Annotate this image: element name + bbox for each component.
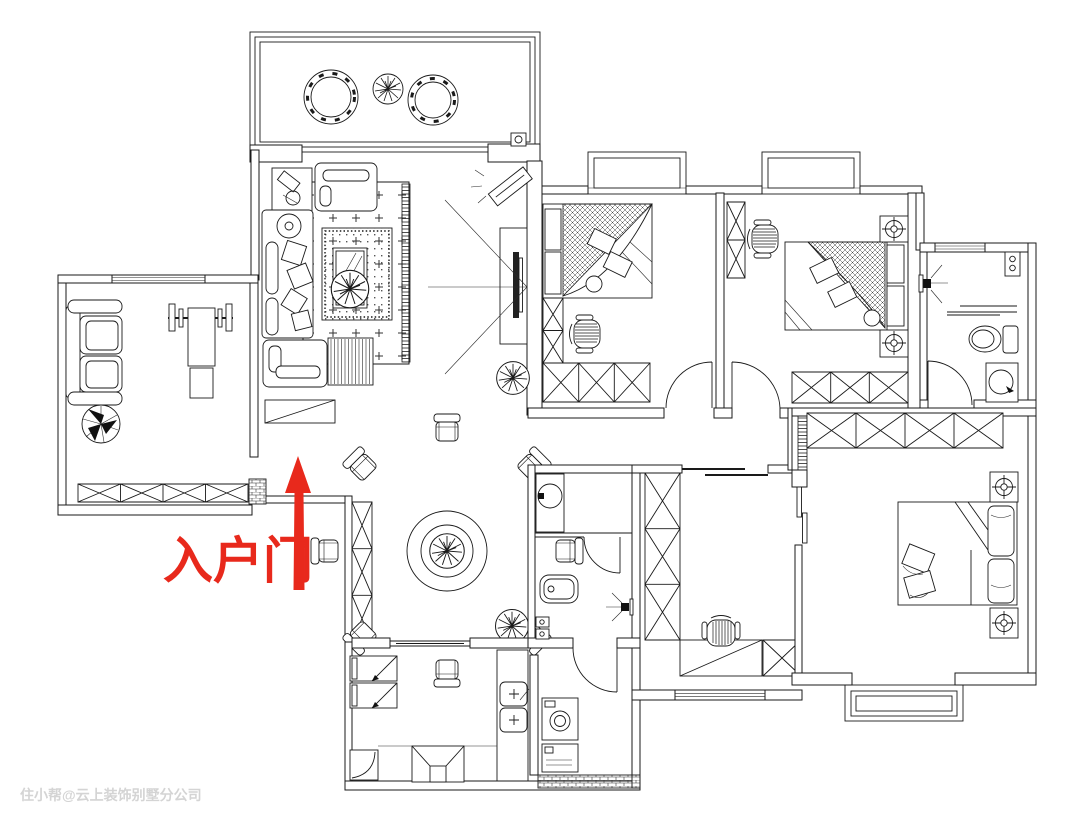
round-chair-icon [408,75,458,125]
gym-room [58,275,266,515]
plant-icon [497,362,530,395]
tv-icon [513,252,523,318]
weight-bench [168,304,233,398]
centerpiece-plant-icon [430,534,465,569]
wall-segment [528,638,573,648]
vanity-sink [536,474,564,532]
plant-icon [373,74,403,104]
wall-segment [716,193,724,408]
bay-window [762,152,860,194]
door-swing [584,537,620,573]
balcony [250,32,540,162]
water-heater-icon [542,744,578,772]
sliding-door [797,487,807,543]
window [112,275,205,283]
bedroom-1 [528,152,762,418]
nightstand [880,216,908,242]
bathtub [540,575,578,603]
bed [898,502,1017,605]
entry-door-threshold [266,496,345,503]
wall-segment [352,638,390,648]
wall-segment [58,505,252,515]
armchair [263,340,327,387]
nightstand [880,330,908,357]
office-chair [570,315,601,353]
cabinet-x [792,372,908,403]
bathroom-2 [528,465,640,700]
bed [543,204,652,298]
wall-segment [528,465,535,645]
wardrobe-x [645,473,680,640]
wardrobe-x [807,413,1003,448]
wall-segment [955,673,1036,685]
round-chair-icon [304,70,358,124]
sliding-door [682,469,768,475]
armchair [315,163,377,211]
stove-hood [412,746,464,782]
wall-segment [792,673,852,685]
bed [785,242,904,330]
table-plant-icon [331,270,369,308]
corner-cabinet [350,750,378,780]
wall-segment [250,283,258,457]
bay-window [588,152,686,194]
wall-segment [788,408,792,470]
kitchen-counter [497,650,529,781]
sink-icon [986,363,1018,402]
wall-segment [528,465,640,473]
wall-segment [530,655,538,775]
office-chair [702,616,740,647]
wall-segment [542,186,588,194]
wall-segment [488,144,540,162]
toilet-icon [969,326,1018,353]
wall-segment [58,275,66,515]
wall-segment [714,408,732,418]
wall-segment [617,638,640,648]
master-bedroom [788,408,1036,721]
office-chair [748,220,779,258]
wall-segment [1028,243,1036,683]
cabinet-x [543,363,650,402]
shoe-cabinet [265,400,335,423]
window [935,243,985,252]
wall-segment [792,470,807,487]
wardrobe-x [543,298,563,363]
wall-segment [470,638,535,648]
washing-machine-icon [542,698,578,740]
wall-segment [632,465,682,473]
wall-segment [916,193,924,250]
kitchen [345,638,640,790]
wall-segment [251,150,259,280]
wall-segment [528,408,664,418]
speaker-frame-icon [488,167,532,206]
sofa [262,210,313,338]
tv-sightlines [428,200,527,374]
nightstand [990,472,1018,502]
brick-wall [538,775,640,788]
fridge [350,656,397,708]
coffee-table [331,248,369,308]
wardrobe-x [727,202,745,278]
sliding-door [390,641,470,646]
bay-window [845,685,963,721]
wall-segment [345,496,352,642]
door-swing [928,361,972,405]
cabinet-x [352,502,372,642]
door-swing [666,362,712,408]
wall-hatch [798,416,807,470]
switch-box [1005,252,1020,276]
shelf [947,306,1017,315]
entry-annotation: 入户门 [163,456,313,590]
wall-segment [920,400,928,408]
laundry [538,698,640,788]
potted-plant-icon [82,405,120,443]
wall-segment [795,545,802,675]
nightstand [990,608,1018,638]
partition [535,533,632,537]
shower-head-icon [606,593,633,621]
floor-plan: 入户门 住小帮@云上装饰别墅分公司 [0,0,1080,830]
window [675,690,765,700]
floor-drain-icon [511,133,526,146]
study [632,465,802,700]
door-jamb [249,479,266,504]
door-swing [573,648,617,692]
cabinet-x [78,484,248,502]
door-swing [732,362,780,408]
striped-side-table [328,338,373,385]
watermark: 住小帮@云上装饰别墅分公司 [20,787,202,803]
side-cabinet [272,168,312,212]
entry-label: 入户门 [163,533,313,589]
living-room [251,150,542,415]
sofa [66,300,122,405]
wall-segment [632,465,640,700]
